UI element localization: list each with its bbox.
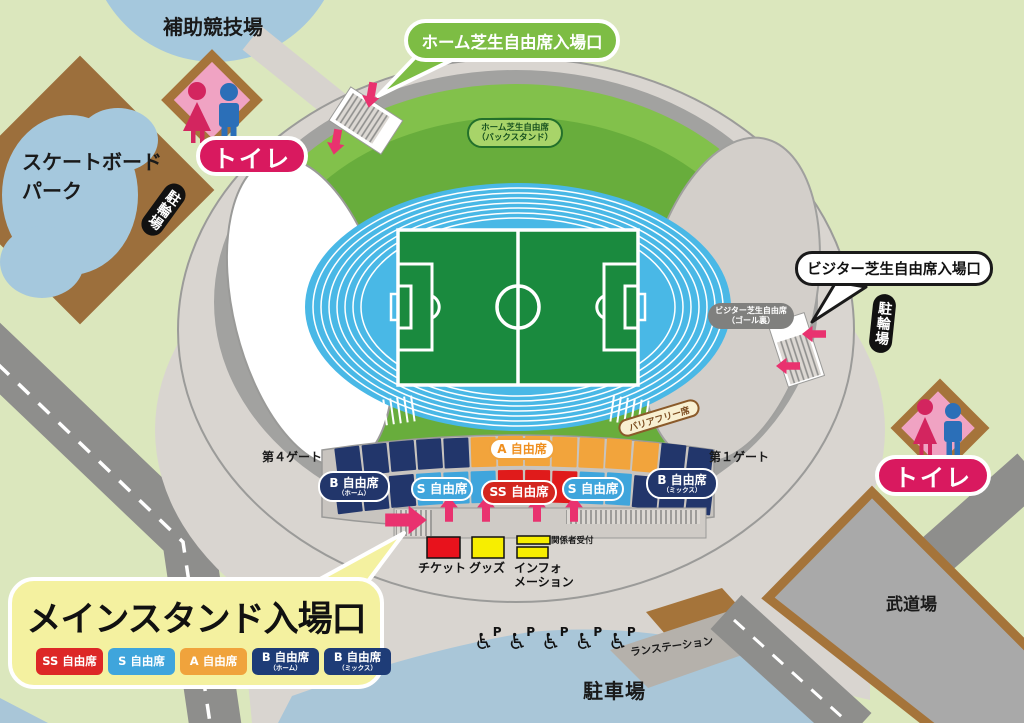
seat-label-s-left: S 自由席: [411, 477, 473, 501]
main-stand-entrance-title: メインスタンド入場口: [12, 591, 380, 642]
legend-b-mix: B 自由席 （ミックス）: [324, 648, 391, 675]
parking-label: 駐車場: [583, 675, 646, 704]
wheelchair-parking-icon: ♿P: [575, 632, 603, 654]
main-stand-entrance-callout: メインスタンド入場口 SS 自由席 S 自由席 A 自由席 B 自由席 （ホーム…: [8, 577, 384, 689]
legend-a: A 自由席: [180, 648, 247, 675]
ticket-label: チケット: [418, 562, 466, 576]
home-lawn-entrance-callout: ホーム芝生自由席入場口: [404, 19, 620, 62]
gate1-label: 第１ゲート: [709, 448, 769, 465]
information-label: インフォ メーション: [514, 562, 574, 590]
staff-reception-label: 関係者受付: [551, 534, 594, 546]
seat-label-b-mix: B 自由席 （ミックス）: [646, 468, 718, 499]
soccer-pitch: [391, 230, 645, 385]
legend-b-home: B 自由席 （ホーム）: [252, 648, 319, 675]
seat-legend: SS 自由席 S 自由席 A 自由席 B 自由席 （ホーム） B 自由席 （ミッ…: [36, 648, 380, 675]
wheelchair-parking-icon: ♿P: [541, 632, 569, 654]
toilet-badge-nw: トイレ: [196, 136, 308, 176]
auxiliary-field-label: 補助競技場: [163, 11, 263, 40]
booth-shapes: [427, 536, 550, 558]
goods-label: グッズ: [469, 562, 505, 576]
visitor-lawn-area-label: ビジター芝生自由席 （ゴール裏）: [708, 303, 794, 329]
wheelchair-parking-icon: ♿P: [508, 632, 536, 654]
toilet-badge-se: トイレ: [875, 455, 991, 496]
seat-label-a: A 自由席: [489, 438, 555, 460]
seat-label-b-home: B 自由席 （ホーム）: [318, 471, 390, 502]
seat-label-s-right: S 自由席: [562, 477, 624, 501]
budokan-label: 武道場: [886, 590, 937, 615]
stadium-map: 補助競技場 スケートボード パーク トイレ トイレ 駐輪場 駐輪場 ホーム芝生自…: [0, 0, 1024, 723]
skateboard-park-label: スケートボード パーク: [22, 146, 162, 204]
wheelchair-parking-icon: ♿P: [474, 632, 502, 654]
legend-s: S 自由席: [108, 648, 175, 675]
visitor-lawn-entrance-callout: ビジター芝生自由席入場口: [795, 251, 993, 286]
legend-ss: SS 自由席: [36, 648, 103, 675]
home-lawn-area-label: ホーム芝生自由席 （バックスタンド）: [467, 118, 563, 148]
accessible-parking-icons: ♿P ♿P ♿P ♿P ♿P: [474, 632, 636, 654]
gate4-label: 第４ゲート: [262, 448, 322, 465]
seat-label-ss: SS 自由席: [481, 480, 557, 505]
